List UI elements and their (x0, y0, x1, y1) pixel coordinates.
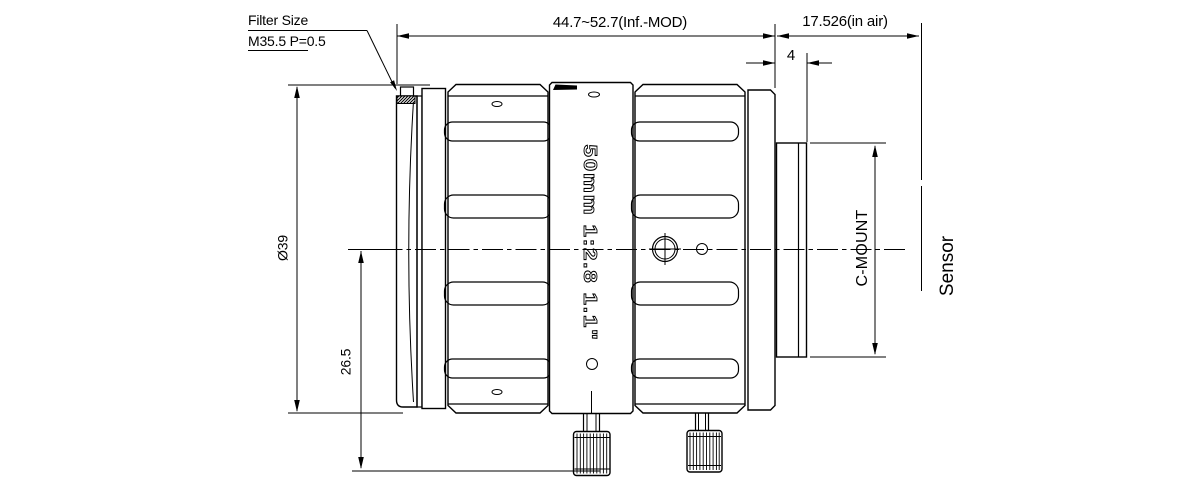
front-step-ring (417, 96, 422, 407)
barrel-engraving-text: 50mm 1:2.8 1.1" (580, 145, 601, 342)
dim-front-diameter-text: Ø39 (275, 235, 291, 261)
front-rim-outline (397, 96, 418, 407)
filter-thread-hatch (397, 96, 415, 104)
iris-ring (632, 85, 746, 414)
filter-size-note: Filter Size M35.5 P=0.5 (248, 12, 397, 91)
focus-ring (445, 85, 552, 414)
thumbscrew-rear (687, 413, 722, 472)
dim-axis-height-text: 26.5 (338, 348, 354, 375)
dimension-flange-to-sensor: 17.526(in air) (777, 13, 919, 39)
filter-cap (401, 87, 414, 96)
dimension-overall-length: 44.7~52.7(Inf.-MOD) (397, 14, 775, 88)
filter-leader-line (367, 31, 395, 89)
drawing-canvas: 50mm 1:2.8 1.1" (0, 0, 1192, 480)
dim-flange-text: 17.526(in air) (802, 13, 888, 30)
filter-note-spec: M35.5 P=0.5 (248, 33, 326, 49)
front-filter-section (397, 87, 446, 409)
front-spacer-ring (422, 89, 446, 409)
dim-thread-length-text: 4 (787, 47, 795, 64)
focus-ring-outline (448, 85, 548, 414)
filter-note-title: Filter Size (248, 12, 308, 28)
sensor-plane: Sensor (922, 23, 959, 296)
filter-leader-arrow (390, 80, 397, 91)
lens-body: 50mm 1:2.8 1.1" (397, 83, 807, 476)
c-mount-label: C-MOUNT (854, 210, 871, 287)
lens-technical-drawing: 50mm 1:2.8 1.1" (0, 0, 1192, 480)
sensor-label: Sensor (937, 235, 958, 296)
dim-overall-length-text: 44.7~52.7(Inf.-MOD) (553, 14, 687, 31)
barrel-label-section: 50mm 1:2.8 1.1" (550, 83, 634, 414)
